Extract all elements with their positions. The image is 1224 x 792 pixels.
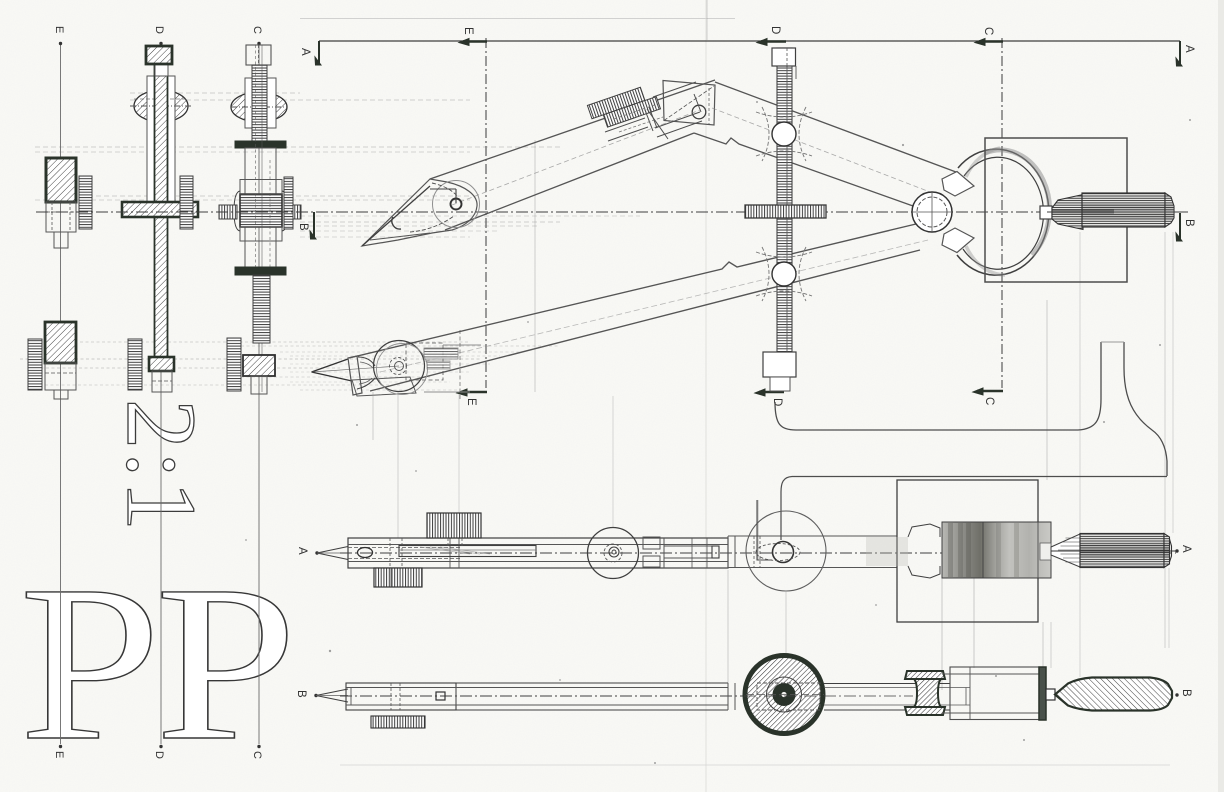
svg-text:A: A <box>1183 45 1195 53</box>
svg-text:A: A <box>1180 545 1192 553</box>
svg-text:E: E <box>465 398 477 406</box>
svg-text:B: B <box>297 223 309 231</box>
svg-text:A: A <box>296 547 308 555</box>
svg-text:B: B <box>1183 219 1195 227</box>
svg-text:E: E <box>53 751 65 758</box>
svg-text:P: P <box>19 539 161 786</box>
svg-text:C: C <box>251 751 263 759</box>
svg-text:D: D <box>153 26 165 34</box>
svg-text:D: D <box>153 751 165 759</box>
svg-text:D: D <box>771 398 783 406</box>
svg-text:C: C <box>251 26 263 34</box>
svg-text:C: C <box>983 397 995 405</box>
svg-text:A: A <box>299 48 311 56</box>
svg-text:P: P <box>155 539 297 786</box>
svg-text:B: B <box>295 690 307 698</box>
svg-text:B: B <box>1180 689 1192 697</box>
svg-text:C: C <box>982 27 994 35</box>
svg-text:D: D <box>769 26 781 34</box>
svg-text:E: E <box>462 27 474 35</box>
svg-text:E: E <box>53 26 65 33</box>
svg-text:2:1: 2:1 <box>106 399 217 533</box>
